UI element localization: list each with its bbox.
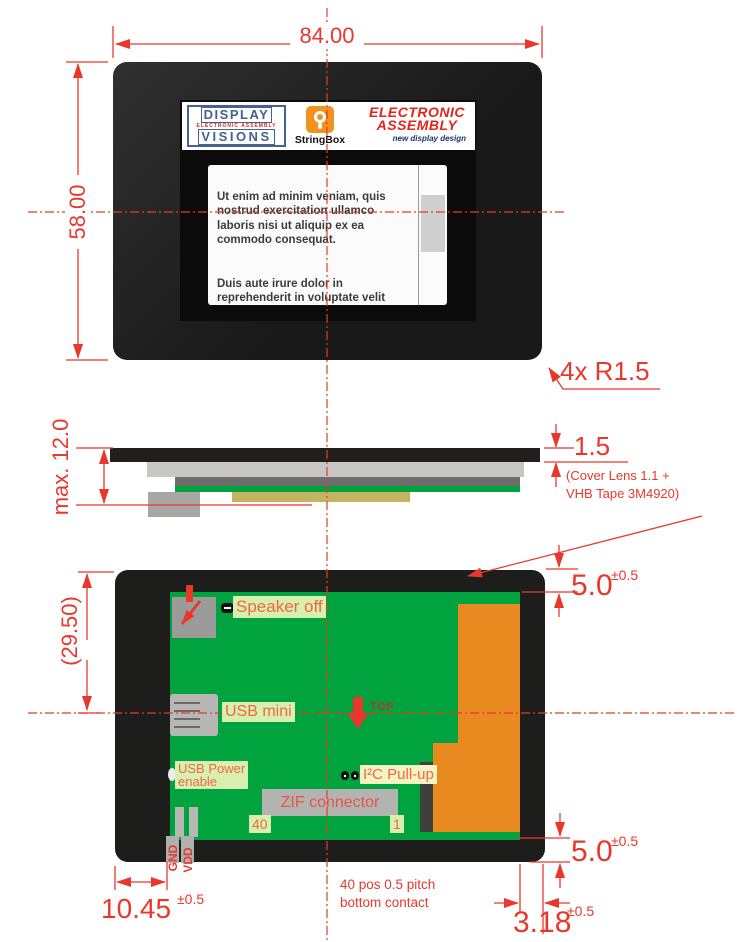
zif-connector: ZIF connector bbox=[262, 789, 398, 816]
scrollbar-divider bbox=[418, 165, 419, 305]
usb-power-line2: enable bbox=[178, 775, 245, 788]
technical-drawing: DISPLAY ELECTRONIC ASSEMBLY VISIONS Stri… bbox=[0, 0, 739, 942]
dim-left-offset-tolerance: ±0.5 bbox=[177, 891, 204, 907]
zif-pin40-label: 40 bbox=[249, 815, 271, 833]
orange-component-upper bbox=[458, 604, 520, 743]
usb-power-enable-label: USB Power enable bbox=[175, 761, 248, 789]
side-cover-lens-layer bbox=[110, 448, 540, 462]
cover-lens-note-line1: (Cover Lens 1.1 + bbox=[566, 468, 670, 483]
dim-contact-offset-tolerance: ±0.5 bbox=[567, 903, 594, 919]
i2c-jumper bbox=[351, 771, 359, 780]
dim-29-50 bbox=[78, 572, 114, 713]
speaker-off-label: Speaker off bbox=[233, 596, 326, 618]
ea-logo-tagline: new display design bbox=[362, 134, 472, 143]
screen-paragraph-1: Ut enim ad minim veniam, quis nostrud ex… bbox=[217, 190, 417, 248]
usb-pin-line bbox=[174, 702, 200, 704]
logo-bar: DISPLAY ELECTRONIC ASSEMBLY VISIONS Stri… bbox=[182, 102, 475, 150]
i2c-jumper bbox=[341, 771, 349, 780]
side-connector-layer bbox=[232, 492, 410, 502]
dim-contact-offset-text: 3.18 bbox=[513, 906, 571, 940]
dim-left-offset-text: 10.45 bbox=[101, 893, 171, 925]
stringbox-icon-dot bbox=[318, 123, 322, 129]
dv-logo-line1: DISPLAY bbox=[201, 107, 273, 123]
speaker-component bbox=[172, 597, 216, 638]
dim-top-offset-tolerance: ±0.5 bbox=[611, 567, 638, 583]
zif-connector-label: ZIF connector bbox=[281, 794, 380, 812]
cover-lens-note-line2: VHB Tape 3M4920) bbox=[566, 486, 679, 501]
dim-bottom-offset-text: 5.0 bbox=[571, 835, 613, 869]
dim-bottom-offset-tolerance: ±0.5 bbox=[611, 833, 638, 849]
usb-mini-label: USB mini bbox=[222, 702, 295, 722]
lcd-screen: Ut enim ad minim veniam, quis nostrud ex… bbox=[208, 165, 447, 305]
power-pin bbox=[175, 807, 184, 837]
dim-pcb-height-text: (29.50) bbox=[57, 596, 83, 666]
ea-logo-line2: ASSEMBLY bbox=[362, 119, 472, 132]
screen-text: Ut enim ad minim veniam, quis nostrud ex… bbox=[217, 175, 417, 320]
corner-radius-text: 4x R1.5 bbox=[560, 356, 650, 387]
display-visions-logo: DISPLAY ELECTRONIC ASSEMBLY VISIONS bbox=[187, 105, 286, 147]
side-frame-layer bbox=[175, 477, 520, 486]
orange-component-lower bbox=[433, 743, 520, 832]
stringbox-icon-ring bbox=[314, 111, 326, 123]
scrollbar-thumb[interactable] bbox=[421, 195, 445, 252]
contact-note-line1: 40 pos 0.5 pitch bbox=[340, 876, 435, 894]
dim-height-text: 58.00 bbox=[65, 180, 91, 243]
power-pin bbox=[189, 807, 198, 837]
dim-width-text: 84.00 bbox=[294, 23, 359, 49]
dim-lens-text: 1.5 bbox=[574, 431, 610, 462]
contact-note: 40 pos 0.5 pitch bottom contact bbox=[340, 876, 435, 912]
usb-pin-line bbox=[174, 726, 200, 728]
usb-pin-line bbox=[174, 710, 200, 712]
usb-pin-line bbox=[174, 718, 200, 720]
usb-mini-connector bbox=[170, 694, 218, 736]
electronic-assembly-logo: ELECTRONIC ASSEMBLY new display design bbox=[362, 106, 472, 143]
top-orientation-label: TOP bbox=[370, 701, 394, 713]
leader-cover-lens bbox=[468, 516, 702, 576]
gnd-label: GND bbox=[166, 845, 180, 872]
stringbox-label: StringBox bbox=[290, 134, 350, 146]
screen-paragraph-2: Duis aute irure dolor in reprehenderit i… bbox=[217, 277, 417, 306]
zif-pin1-label: 1 bbox=[390, 815, 404, 833]
side-display-layer bbox=[147, 462, 524, 477]
dim-max-thickness-text: max. 12.0 bbox=[48, 419, 74, 516]
vdd-label: VDD bbox=[181, 847, 195, 872]
dv-logo-line3: VISIONS bbox=[198, 129, 274, 145]
dim-10-45 bbox=[115, 862, 167, 890]
side-component-block bbox=[148, 492, 200, 517]
stringbox-icon bbox=[306, 106, 334, 133]
dim-top-offset-text: 5.0 bbox=[571, 569, 613, 603]
contact-note-line2: bottom contact bbox=[340, 894, 435, 912]
i2c-pullup-label: I²C Pull-up bbox=[360, 765, 437, 784]
